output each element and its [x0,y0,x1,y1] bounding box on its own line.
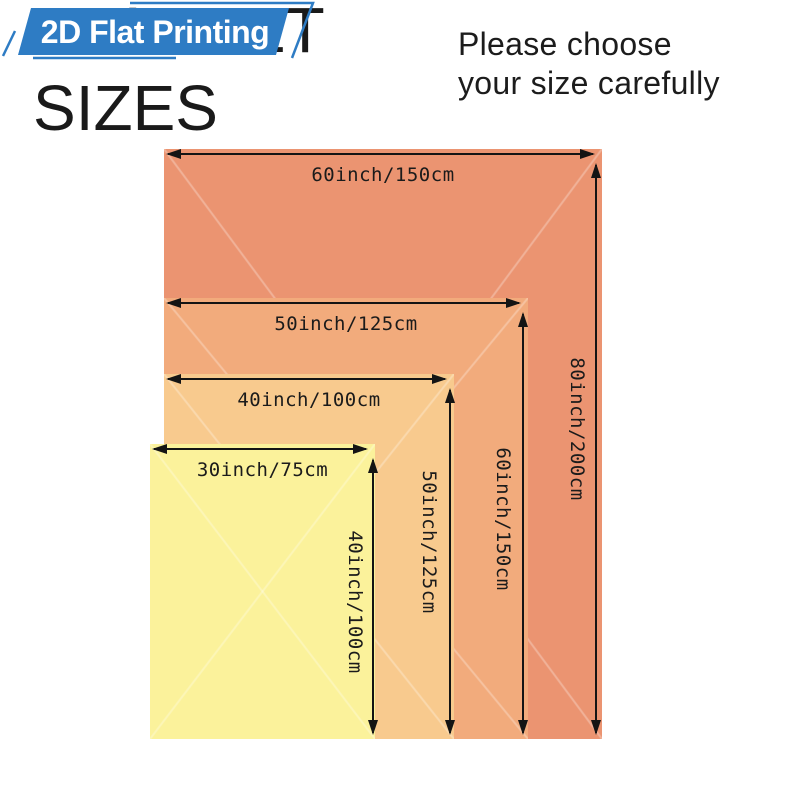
height-label-80inch: 80inch/200cm [566,358,588,501]
size-note: Please choose your size carefully [458,25,720,103]
width-label-60inch: 60inch/150cm [164,164,602,186]
height-arrow-50inch [449,390,451,733]
height-label-60inch: 60inch/150cm [492,447,514,590]
size-note-line-2: your size carefully [458,64,720,103]
width-label-40inch: 40inch/100cm [164,389,454,411]
height-arrow-60inch [522,314,524,733]
width-arrow-50inch [168,302,519,304]
size-rect-30x40: 30inch/75cm 40inch/100cm [150,444,375,739]
height-arrow-40inch [372,460,374,733]
width-arrow-40inch [168,378,445,380]
size-note-line-1: Please choose [458,25,720,64]
height-label-40inch: 40inch/100cm [344,530,366,673]
width-arrow-30inch [154,448,366,450]
size-chart-canvas: BLANKET SIZES 2D Flat Printing Please ch… [0,0,800,800]
width-label-30inch: 30inch/75cm [150,459,375,481]
width-label-50inch: 50inch/125cm [164,313,528,335]
page-title-line-2: SIZES [33,76,218,140]
height-arrow-80inch [595,165,597,733]
badge-label: 2D Flat Printing [30,9,280,55]
width-arrow-60inch [168,153,593,155]
badge-left-dash [3,31,15,56]
height-label-50inch: 50inch/125cm [418,470,440,613]
